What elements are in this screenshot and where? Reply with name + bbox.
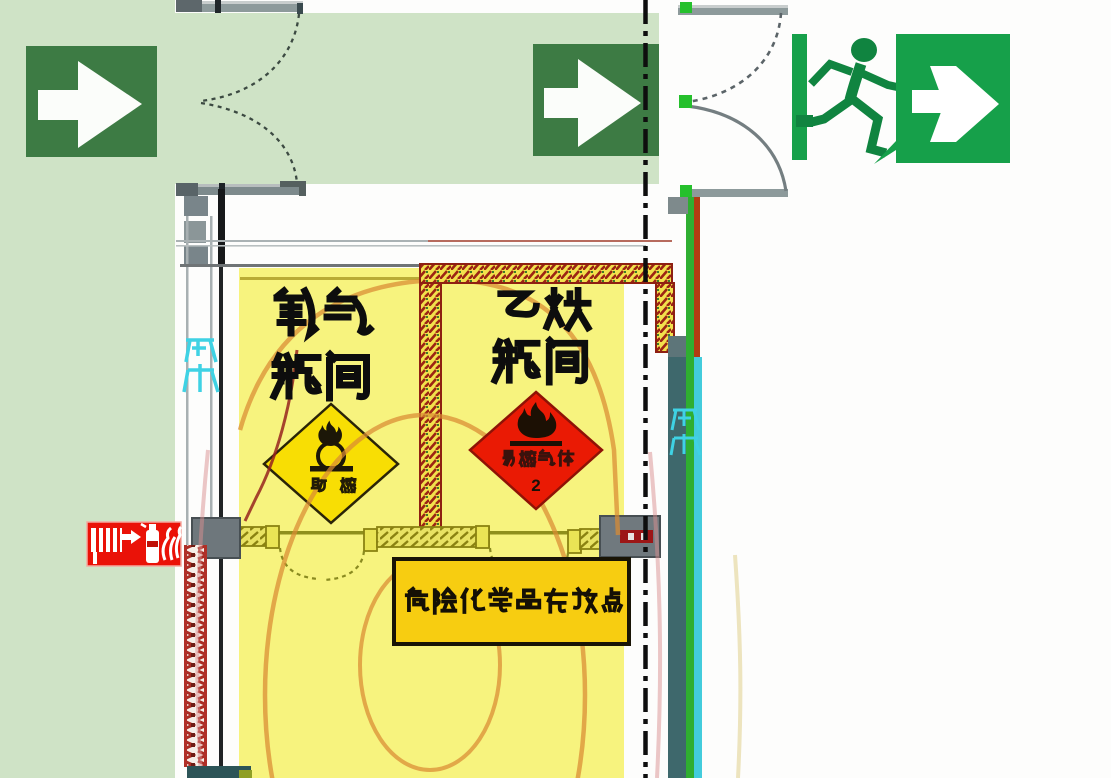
svg-text:2: 2	[531, 476, 540, 495]
